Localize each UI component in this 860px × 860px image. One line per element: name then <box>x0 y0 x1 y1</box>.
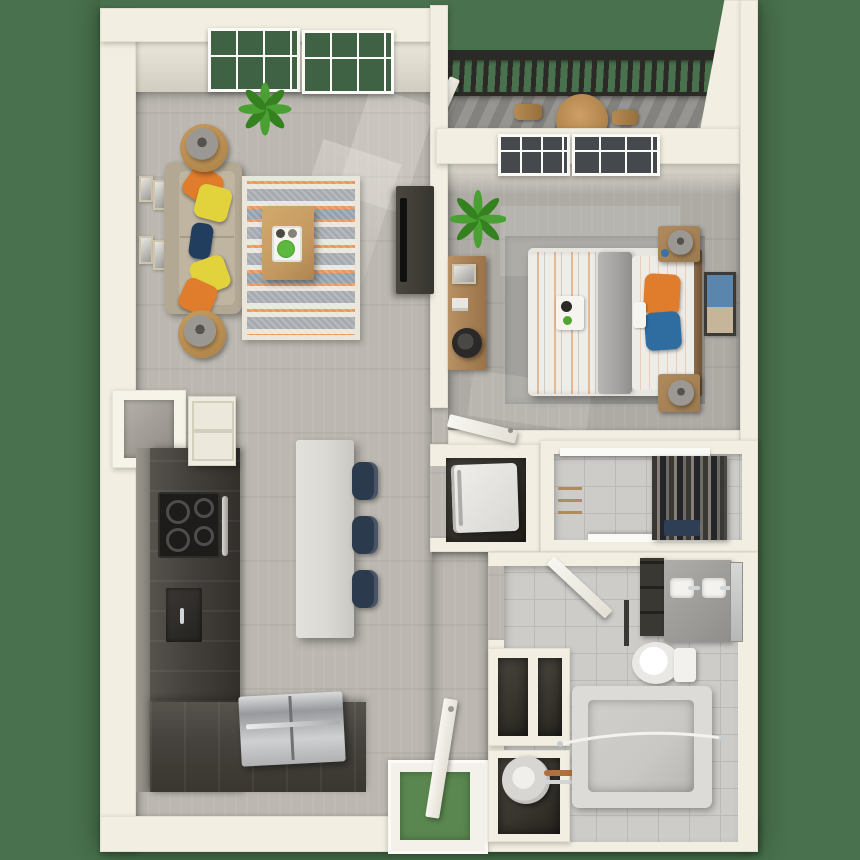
desk-chair <box>452 328 482 358</box>
bathroom-doorway <box>488 566 504 640</box>
rod-end <box>719 735 725 741</box>
bedroom-window-left <box>498 134 570 176</box>
storage-niche <box>498 658 528 736</box>
bed-caddy <box>633 302 646 328</box>
desk-books <box>452 298 468 308</box>
kitchen-island <box>296 440 354 638</box>
entry-door-handle <box>448 706 454 712</box>
bed-pillow-blue <box>644 311 683 351</box>
sink-faucet <box>180 608 184 624</box>
floor-plan-stage <box>0 0 860 860</box>
tray-plant <box>277 240 295 258</box>
bed-tray-apple <box>563 316 572 325</box>
bed-tray-camera <box>561 301 572 312</box>
tv-screen <box>400 198 407 282</box>
bedroom-wall-art <box>704 272 736 336</box>
burner <box>166 500 190 524</box>
bar-stool <box>352 570 378 608</box>
table-lamp-top <box>186 128 218 160</box>
water-heater-pipe-steel <box>544 780 572 784</box>
burner <box>166 528 190 552</box>
table-lamp-bottom <box>184 315 216 347</box>
plant-leaves <box>239 83 292 136</box>
burner <box>194 498 214 518</box>
nightstand-lamp-bottom <box>668 380 694 406</box>
kitchen-sink-panel <box>166 588 202 642</box>
outer-wall-bottom-left <box>100 816 392 852</box>
rod-end <box>557 741 563 747</box>
water-heater <box>502 756 550 804</box>
bed-tray <box>556 296 584 330</box>
closet-shelf-top <box>560 448 710 456</box>
bar-stool <box>352 462 378 500</box>
shower-rod-bar <box>560 733 722 744</box>
balcony-chair-left <box>514 104 542 120</box>
sink-faucet <box>688 586 700 590</box>
living-potted-plant <box>238 80 292 136</box>
upper-cabinet-door <box>192 431 234 461</box>
bar-stool <box>352 516 378 554</box>
bedroom-door-handle <box>508 428 513 433</box>
nightstand-cup <box>661 249 669 257</box>
vanity-mirror <box>730 562 743 642</box>
bedroom-window-right <box>572 134 660 176</box>
living-wall-art <box>139 176 153 202</box>
oven-handle <box>222 496 228 556</box>
nightstand-lamp-top <box>668 230 693 255</box>
bed-pillow-orange <box>643 273 681 315</box>
kitchen-wall-face <box>136 448 150 792</box>
living-window-right <box>302 30 394 94</box>
vanity-counter <box>664 560 732 642</box>
living-wall-art <box>139 236 153 264</box>
balcony-railing-top-bar <box>436 50 742 60</box>
shower-rod <box>556 712 726 756</box>
tray-bowl <box>276 229 285 238</box>
toilet-bowl <box>632 642 680 684</box>
burner <box>194 526 214 546</box>
desk-picture-frame <box>452 264 476 284</box>
closet-folded-clothes <box>664 520 700 536</box>
toilet-tank <box>674 648 696 682</box>
vanity-cabinet <box>640 558 664 636</box>
toilet-supply-pipe <box>624 600 629 646</box>
balcony-chair-right <box>612 110 638 125</box>
balcony-railing-slats <box>436 60 742 96</box>
upper-cabinet-door <box>192 401 234 431</box>
tray-bowl <box>288 229 297 238</box>
bed-blanket-fold <box>598 252 632 394</box>
laundry-doorway <box>430 466 446 538</box>
plant-leaves <box>450 190 506 248</box>
closet-hangers <box>558 478 582 514</box>
bedroom-potted-plant <box>450 188 506 248</box>
